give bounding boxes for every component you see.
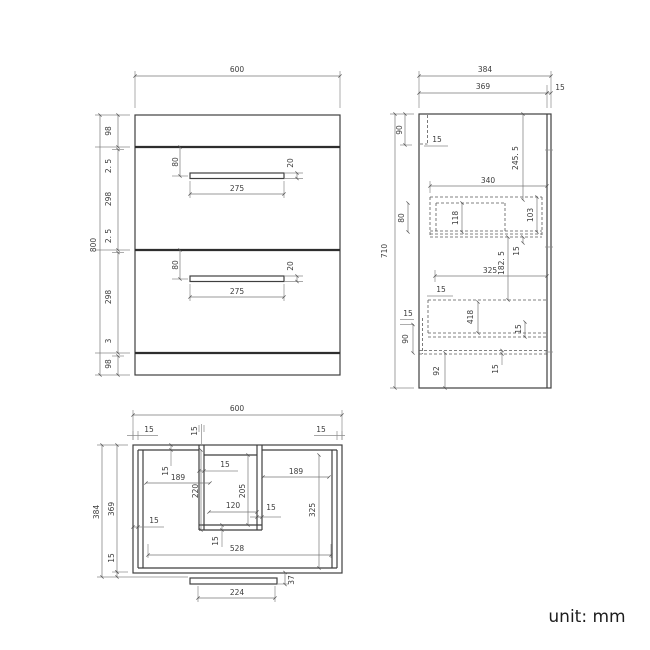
dim-side-height: 710: [380, 244, 389, 259]
dim-plan-depth: 384: [92, 505, 101, 520]
dim-plan-wall-right: 15: [316, 425, 326, 434]
dim-plan-bottom15: 15: [107, 553, 116, 563]
dim-front-drawer1: 298: [104, 192, 113, 207]
dim-front-gap3: 3: [104, 338, 113, 343]
front-view: 600 800 98 2. 5 298 2. 5 298 3 98 80 20 …: [89, 65, 340, 375]
dim-front-drawer2: 298: [104, 290, 113, 305]
dim-handle1-height: 20: [286, 158, 295, 168]
dim-handle2-height: 20: [286, 261, 295, 271]
dim-plan-top-wall: 15: [161, 466, 170, 476]
dim-plan-cut-wall-right: 15: [266, 503, 276, 512]
dim-side-front-panel: 15: [436, 285, 446, 294]
dim-side-418: 418: [466, 310, 475, 325]
dim-front-gap1: 2. 5: [104, 159, 113, 174]
dim-side-low90: 90: [401, 334, 410, 344]
dim-side-top-height: 90: [395, 125, 404, 135]
dim-front-seg-top: 98: [104, 126, 113, 136]
dim-handle1-width: 275: [230, 184, 245, 193]
side-view: 384 369 15 90 15 245. 5 340 80 118 103 1…: [380, 65, 565, 388]
dim-plan-side-wall: 15: [149, 516, 159, 525]
dim-handle2-offset: 80: [171, 260, 180, 270]
dim-plan-wall-left: 15: [144, 425, 154, 434]
dim-front-seg-bottom: 98: [104, 359, 113, 369]
drawer2-handle: [190, 276, 284, 282]
dim-plan-cut120: 120: [226, 501, 241, 510]
side-view-outline: [419, 114, 553, 388]
dim-side-bottom15: 15: [491, 364, 500, 374]
dim-side-340: 340: [481, 176, 496, 185]
drawer1-handle: [190, 173, 284, 179]
dim-side-gap15: 15: [403, 309, 413, 318]
dim-plan-inner528: 528: [230, 544, 245, 553]
dim-side-rail15b: 15: [514, 324, 523, 334]
dim-plan-wall-mid: 15: [190, 426, 199, 436]
dim-side-118: 118: [451, 211, 460, 226]
dim-plan-cut220: 220: [191, 484, 200, 499]
dim-side-inner-depth: 369: [476, 82, 491, 91]
dim-side-325: 325: [483, 266, 498, 275]
dim-side-drop-182: 182. 5: [497, 251, 506, 275]
dim-plan-cut-bottom: 15: [211, 536, 220, 546]
dim-plan-width: 600: [230, 404, 245, 413]
dim-plan-bay-left: 189: [171, 473, 186, 482]
dim-side-drop-245: 245. 5: [511, 146, 520, 170]
dim-plan-bay325: 325: [308, 503, 317, 518]
dim-side-back-thickness: 15: [555, 83, 565, 92]
dim-plan-plinth224: 224: [230, 588, 245, 597]
dim-handle1-offset: 80: [171, 157, 180, 167]
dim-side-depth: 384: [478, 65, 493, 74]
dim-plan-bay-right: 189: [289, 467, 304, 476]
dim-plan-inner-depth: 369: [107, 502, 116, 517]
dim-front-height: 800: [89, 238, 98, 253]
plinth-strip: [190, 578, 277, 584]
vanity-drawing: 600 800 98 2. 5 298 2. 5 298 3 98 80 20 …: [0, 0, 650, 650]
dim-side-plinth92: 92: [432, 366, 441, 376]
dim-handle2-width: 275: [230, 287, 245, 296]
dim-plan-cut-wall: 15: [220, 460, 230, 469]
front-view-outline: [135, 115, 340, 375]
dim-side-rail15: 15: [512, 246, 521, 256]
dim-plan-cut205: 205: [238, 484, 247, 499]
unit-label: unit: mm: [548, 607, 625, 627]
dim-front-width: 600: [230, 65, 245, 74]
dim-plan-plinth37: 37: [287, 575, 296, 585]
dim-front-gap2: 2. 5: [104, 229, 113, 244]
technical-drawing-canvas: 600 800 98 2. 5 298 2. 5 298 3 98 80 20 …: [0, 0, 650, 650]
dim-side-top-panel: 15: [432, 135, 442, 144]
plan-view: 600 15 15 15 384 369 15 15 189 220 15 20…: [92, 404, 345, 602]
dim-side-103: 103: [526, 208, 535, 223]
dim-side-80: 80: [397, 213, 406, 223]
